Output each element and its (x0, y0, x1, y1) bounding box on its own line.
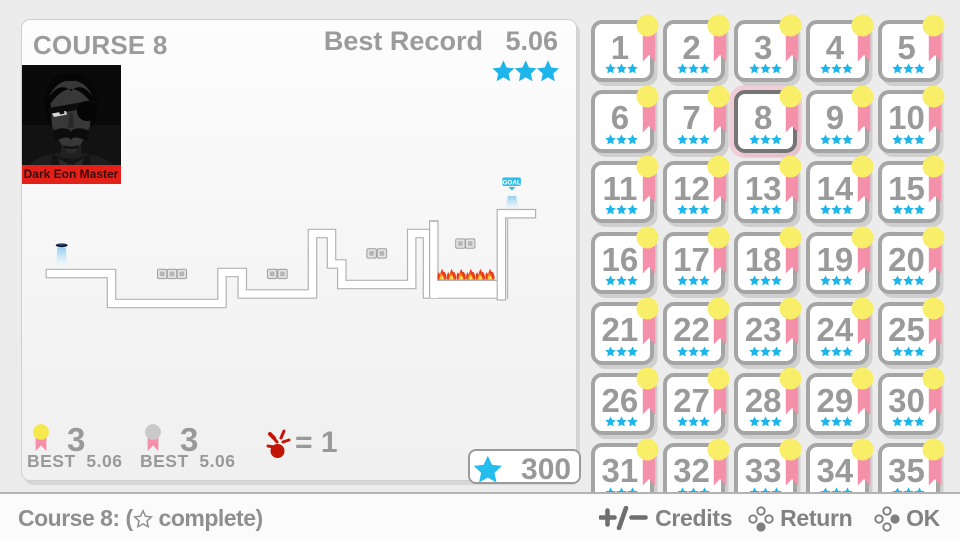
svg-text:GOAL: GOAL (502, 179, 521, 186)
